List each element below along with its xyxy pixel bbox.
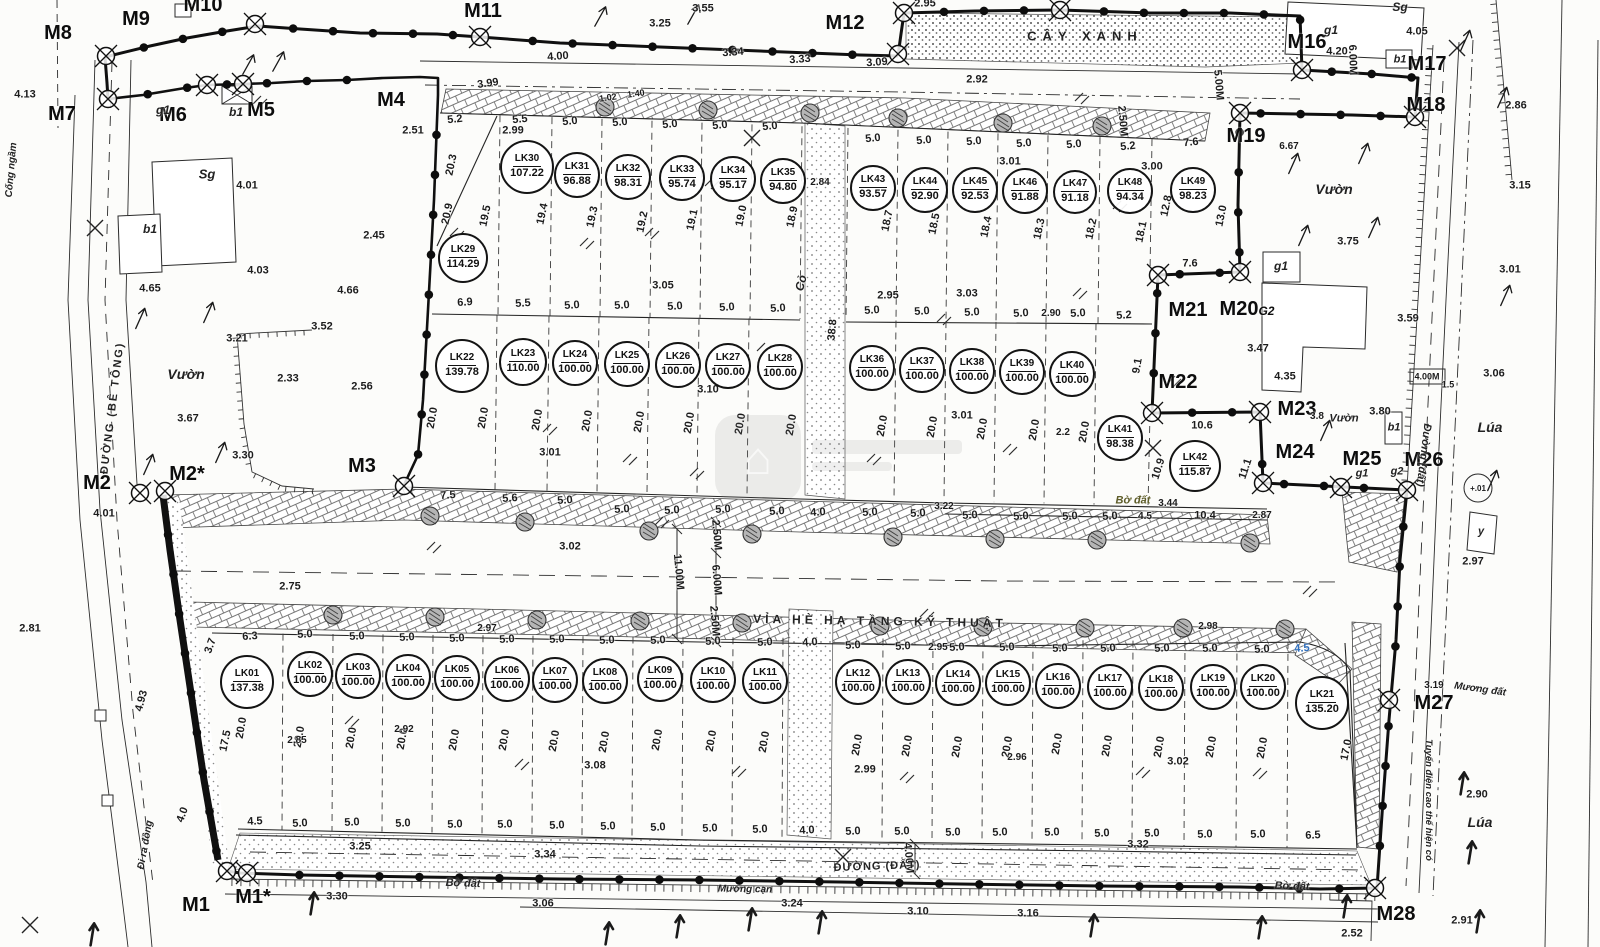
dim-label: 5.0 (1154, 643, 1170, 655)
lot-id: LK08 (591, 668, 619, 681)
dim-label: 5.0 (1100, 643, 1116, 655)
region-label: Vườn (1315, 182, 1352, 196)
dim-label: 20.0 (1153, 735, 1168, 758)
lot-area: 100.00 (941, 683, 975, 696)
dim-label: 2.90 (1041, 309, 1060, 319)
dim-label: 1.40 (627, 88, 646, 99)
lot-lk26: LK26100.00 (655, 342, 701, 388)
lot-lk16: LK16100.00 (1035, 663, 1081, 709)
lot-lk18: LK18100.00 (1138, 665, 1184, 711)
dim-label: 7.6 (1183, 137, 1199, 150)
region-label: VỈA HÈ HẠ TẦNG KỸ THUẬT (753, 613, 1007, 629)
lot-area: 98.38 (1106, 438, 1134, 451)
lot-lk36: LK36100.00 (849, 345, 895, 391)
region-label: Cống ngầm (5, 142, 20, 198)
dim-label: 3.80 (1369, 407, 1390, 418)
dim-label: 38.8 (827, 319, 840, 341)
region-label: Bờ đất (1274, 881, 1309, 893)
lot-area: 100.00 (955, 371, 989, 384)
lot-id: LK17 (1096, 674, 1124, 687)
lot-lk43: LK4393.57 (850, 165, 896, 211)
dim-label: 5.0 (910, 508, 926, 520)
dim-label: 2.92 (966, 75, 987, 86)
lot-id: LK42 (1181, 453, 1209, 466)
dim-label: 18.1 (1134, 220, 1149, 243)
dim-label: 5.0 (667, 301, 683, 313)
lot-area: 135.20 (1305, 703, 1339, 716)
lot-id: LK14 (944, 670, 972, 683)
dim-label: 20.0 (1028, 418, 1043, 441)
dim-label: 5.0 (1013, 308, 1029, 320)
dim-label: 3.02 (559, 542, 580, 553)
lot-id: LK38 (958, 358, 986, 371)
lot-id: LK25 (613, 351, 641, 364)
lot-lk11: LK11100.00 (742, 658, 788, 704)
lot-id: LK34 (719, 166, 747, 179)
lot-id: LK13 (894, 669, 922, 682)
dim-label: 3.55 (692, 4, 713, 15)
dim-label: 19.4 (535, 202, 550, 225)
dim-label: 5.5 (512, 114, 528, 127)
lot-id: LK35 (769, 168, 797, 181)
dim-label: 6.00M (1346, 45, 1358, 76)
marker-m24: M24 (1276, 442, 1315, 462)
dim-label: 5.0 (557, 495, 573, 507)
dim-label: 3.25 (649, 19, 670, 30)
lot-area: 98.31 (614, 177, 642, 190)
lot-area: 100.00 (1246, 687, 1280, 700)
lot-lk47: LK4791.18 (1053, 170, 1097, 214)
dim-label: 19.0 (734, 204, 749, 227)
lot-area: 100.00 (610, 364, 644, 377)
lot-id: LK28 (766, 354, 794, 367)
lot-id: LK29 (449, 245, 477, 258)
lot-lk01: LK01137.38 (220, 655, 274, 709)
lot-id: LK23 (509, 349, 537, 362)
lot-id: LK30 (513, 154, 541, 167)
dim-label: 5.2 (1116, 310, 1132, 322)
dim-label: +.01 (1470, 485, 1486, 493)
lot-lk35: LK3594.80 (760, 158, 806, 204)
lot-lk44: LK4492.90 (902, 167, 948, 213)
dim-label: 4.93 (134, 689, 150, 713)
lot-id: LK47 (1061, 179, 1089, 192)
dim-label: 5.0 (399, 632, 415, 644)
dim-label: 3.10 (907, 907, 928, 918)
lot-area: 100.00 (661, 365, 695, 378)
lot-id: LK45 (961, 177, 989, 190)
dim-label: 3.21 (226, 334, 247, 345)
region-label: Lúa (1468, 815, 1493, 829)
marker-m16: M16 (1288, 32, 1327, 52)
dim-label: 5.0 (845, 826, 861, 838)
dim-label: 2.98 (1198, 622, 1217, 632)
dim-label: 5.0 (1066, 139, 1082, 152)
lot-id: LK46 (1011, 178, 1039, 191)
lot-id: LK01 (233, 669, 261, 682)
lot-lk41: LK4198.38 (1097, 415, 1143, 461)
dim-label: 5.0 (1044, 827, 1060, 839)
lot-lk31: LK3196.88 (554, 152, 600, 198)
dim-label: 3.09 (866, 57, 888, 69)
lot-lk02: LK02100.00 (287, 651, 333, 697)
lot-area: 100.00 (1041, 686, 1075, 699)
dim-label: 5.0 (497, 819, 513, 831)
dim-label: 2.86 (1505, 101, 1526, 112)
dim-label: 20.0 (851, 733, 866, 756)
dim-label: 18.7 (880, 209, 895, 232)
lot-area: 139.78 (445, 366, 479, 379)
dim-label: 4.0 (802, 637, 818, 649)
dim-label: 5.0 (1013, 511, 1029, 523)
lot-id: LK15 (994, 670, 1022, 683)
dim-label: 3.00 (1141, 162, 1162, 173)
dim-label: 20.0 (235, 716, 250, 739)
dim-label: 5.0 (705, 636, 721, 648)
lot-area: 100.00 (538, 680, 572, 693)
region-label: g2 (1391, 467, 1404, 478)
lot-area: 100.00 (643, 679, 677, 692)
lot-lk15: LK15100.00 (985, 660, 1031, 706)
dim-label: 3.99 (477, 77, 500, 91)
dim-label: 20.0 (345, 726, 360, 749)
cadastral-map: LK01137.38LK02100.00LK03100.00LK04100.00… (0, 0, 1600, 947)
lot-area: 95.74 (668, 178, 696, 191)
lot-lk38: LK38100.00 (949, 348, 995, 394)
region-label: g1 (1324, 24, 1338, 36)
dim-label: 3.01 (951, 411, 972, 422)
dim-label: 9.1 (1131, 358, 1144, 375)
marker-m25: M25 (1343, 449, 1382, 469)
dim-label: 19.2 (635, 210, 650, 233)
lot-area: 100.00 (293, 674, 327, 687)
dim-label: 6.5 (1305, 830, 1321, 842)
marker-m4: M4 (377, 90, 405, 110)
lot-id: LK26 (664, 352, 692, 365)
dim-label: 3.8 (1310, 412, 1324, 422)
dim-label: 2.2 (1056, 428, 1070, 438)
lot-id: LK39 (1008, 359, 1036, 372)
marker-m22: M22 (1159, 372, 1198, 392)
dim-label: 5.0 (865, 133, 881, 146)
lot-area: 96.88 (563, 175, 591, 188)
region-label: Bờ đất (445, 878, 480, 890)
dim-label: 5.0 (992, 827, 1008, 839)
lot-id: LK03 (344, 663, 372, 676)
dim-label: 3.24 (781, 899, 802, 910)
region-label: ĐƯỜNG (BÊ TÔNG) (99, 341, 126, 475)
dim-label: 5.0 (762, 121, 778, 134)
lot-lk28: LK28100.00 (757, 344, 803, 390)
lot-id: LK09 (646, 666, 674, 679)
lot-lk10: LK10100.00 (690, 657, 736, 703)
marker-m2: M2 (83, 473, 111, 493)
marker-m21: M21 (1169, 300, 1208, 320)
dim-label: 20.0 (951, 735, 966, 758)
dim-label: 3.03 (956, 289, 977, 300)
dim-label: 5.0 (864, 305, 880, 317)
lot-id: LK43 (859, 175, 887, 188)
dim-label: 10.4 (1194, 511, 1215, 522)
dim-label: 3.08 (584, 761, 605, 772)
dim-label: 5.0 (770, 303, 786, 315)
dim-label: 4.5 (247, 816, 263, 828)
lot-area: 114.29 (446, 258, 479, 271)
lot-id: LK49 (1179, 177, 1207, 190)
dim-label: 2.99 (502, 126, 523, 137)
lot-lk27: LK27100.00 (705, 343, 751, 389)
lot-id: LK27 (714, 353, 742, 366)
dim-label: 13.0 (1214, 204, 1229, 227)
dim-label: 5.0 (962, 510, 978, 522)
dim-label: 2.85 (287, 736, 306, 746)
region-label: b1 (1388, 423, 1401, 434)
dim-label: 5.0 (1202, 643, 1218, 655)
region-label: Đi ra đồng (137, 820, 155, 870)
dim-label: 20.0 (477, 406, 492, 429)
dim-label: 10.9 (1150, 457, 1167, 481)
watermark-bar (812, 462, 892, 471)
dim-label: 5.0 (349, 631, 365, 643)
marker-m5: M5 (247, 100, 275, 120)
dim-label: 20.0 (1205, 735, 1220, 758)
lot-area: 100.00 (440, 678, 474, 691)
dim-label: 2.91 (1451, 916, 1472, 927)
dim-label: 4.05 (1406, 27, 1427, 38)
region-label: Đường (đất) (1414, 423, 1433, 487)
region-label: Mương đất (1453, 681, 1506, 698)
dim-label: 5.0 (862, 507, 878, 519)
lot-lk29: LK29114.29 (438, 233, 488, 283)
lot-area: 110.00 (506, 362, 539, 375)
dim-label: 5.0 (1052, 643, 1068, 655)
dim-label: 4.0 (810, 507, 826, 519)
region-label: Sg (199, 168, 216, 181)
dim-label: 20.0 (633, 410, 648, 433)
marker-m7: M7 (48, 104, 76, 124)
dim-label: 1.5 (1442, 381, 1455, 390)
lot-area: 100.00 (855, 368, 889, 381)
lot-id: LK44 (911, 177, 939, 190)
marker-m19: M19 (1227, 126, 1266, 146)
dim-label: 3.75 (1337, 237, 1358, 248)
dim-label: 3.01 (1499, 265, 1520, 276)
marker-m1: M1 (182, 895, 210, 915)
dim-label: 3.33 (789, 54, 811, 66)
lot-area: 100.00 (711, 366, 745, 379)
dim-label: 19.5 (478, 204, 493, 227)
dim-label: 5.0 (447, 819, 463, 831)
dim-label: 3.01 (999, 157, 1020, 168)
dim-label: 2.45 (363, 231, 384, 242)
lot-lk25: LK25100.00 (604, 341, 650, 387)
dim-label: 2.87 (1252, 511, 1271, 521)
marker-m1-star: M1* (235, 887, 271, 907)
lot-lk17: LK17100.00 (1087, 664, 1133, 710)
lot-area: 91.88 (1011, 191, 1039, 204)
dim-label: 5.0 (614, 504, 630, 516)
dim-label: 5.0 (1062, 511, 1078, 523)
dim-label: 5.0 (499, 634, 515, 646)
marker-m3: M3 (348, 456, 376, 476)
dim-label: 10.6 (1191, 421, 1212, 432)
lot-lk42: LK42115.87 (1169, 440, 1221, 492)
dim-label: 20.0 (498, 728, 513, 751)
lot-id: LK40 (1058, 361, 1086, 374)
dim-label: 2.95 (928, 643, 947, 653)
dim-label: 4.20 (1326, 47, 1347, 58)
lot-lk06: LK06100.00 (484, 656, 530, 702)
lot-area: 115.87 (1178, 466, 1211, 479)
lot-area: 92.90 (911, 190, 939, 203)
dim-label: 20.3 (444, 153, 459, 176)
dim-label: 4.65 (139, 284, 160, 295)
dim-label: 5.5 (515, 298, 531, 310)
dim-label: 5.2 (1120, 141, 1136, 154)
dim-label: 3.44 (1158, 499, 1177, 509)
lot-lk30: LK30107.22 (500, 140, 554, 194)
dim-label: 3.19 (1424, 681, 1443, 691)
region-label: y (1478, 527, 1484, 538)
dim-label: 2.84 (810, 178, 829, 188)
dim-label: 5.0 (966, 136, 982, 149)
dim-label: 20.0 (548, 729, 563, 752)
dim-label: 18.3 (1032, 217, 1047, 240)
dim-label: 5.0 (1250, 829, 1266, 841)
dim-label: 2.51 (402, 126, 423, 137)
region-label: Bờ đất (1116, 496, 1151, 507)
lot-id: LK22 (448, 353, 476, 366)
dim-label: 3.10 (697, 385, 718, 396)
dim-label: 5.2 (447, 114, 463, 127)
dim-label: 4.03 (247, 266, 268, 277)
lot-lk23: LK23110.00 (499, 338, 547, 386)
dim-label: 3.34 (722, 47, 744, 59)
marker-m11: M11 (464, 1, 502, 21)
lot-area: 94.34 (1116, 191, 1144, 204)
lot-lk19: LK19100.00 (1190, 664, 1236, 710)
dim-label: 4.0 (175, 806, 191, 824)
lot-id: LK32 (614, 164, 642, 177)
marker-m8: M8 (44, 23, 72, 43)
dim-label: 2.50M (1115, 105, 1129, 136)
dim-label: 18.2 (1084, 217, 1099, 240)
marker-m28: M28 (1377, 904, 1416, 924)
lot-id: LK33 (668, 165, 696, 178)
dim-label: 6.9 (457, 297, 473, 309)
dim-label: 4.5 (1294, 643, 1310, 655)
dim-label: 3.7 (203, 637, 219, 655)
dim-label: 2.92 (394, 725, 413, 735)
dim-label: 5.0 (612, 117, 628, 130)
dim-label: 5.0 (949, 642, 965, 654)
lot-id: LK18 (1147, 675, 1175, 688)
marker-m17: M17 (1408, 54, 1447, 74)
dim-label: 5.0 (964, 307, 980, 319)
lot-lk08: LK08100.00 (582, 658, 628, 704)
lot-id: LK02 (296, 661, 324, 674)
lot-id: LK05 (443, 665, 471, 678)
dim-label: 20.0 (901, 734, 916, 757)
lot-lk03: LK03100.00 (335, 653, 381, 699)
dim-label: 3.34 (534, 850, 555, 861)
dim-label: 2.33 (277, 374, 298, 385)
dim-label: 5.0 (895, 641, 911, 653)
dim-label: 5.0 (614, 300, 630, 312)
region-label: Vườn (167, 367, 204, 381)
marker-m12: M12 (826, 13, 865, 33)
dim-label: 7.5 (440, 490, 456, 502)
marker-m9: M9 (122, 9, 150, 29)
dim-label: 6.3 (242, 631, 258, 643)
lot-area: 100.00 (1055, 374, 1089, 387)
dim-label: 2.97 (477, 624, 496, 634)
lot-area: 100.00 (341, 676, 375, 689)
lot-area: 91.18 (1061, 192, 1089, 205)
lot-area: 95.17 (719, 179, 747, 192)
marker-m10: M10 (184, 0, 223, 15)
dim-label: 3.59 (1397, 314, 1418, 325)
dim-label: 4.5 (1138, 512, 1152, 522)
dim-label: 5.0 (650, 822, 666, 834)
dim-label: 5.0 (845, 640, 861, 652)
lot-id: LK21 (1308, 690, 1336, 703)
dim-label: 20.0 (651, 728, 666, 751)
dim-label: 5.0 (395, 818, 411, 830)
dim-label: 4.35 (1274, 372, 1295, 383)
lot-id: LK48 (1116, 178, 1144, 191)
lot-area: 100.00 (490, 679, 524, 692)
lot-id: LK37 (908, 357, 936, 370)
dim-label: 5.0 (752, 824, 768, 836)
dim-label: 5.0 (712, 120, 728, 133)
dim-label: 20.0 (876, 414, 891, 437)
dim-label: 5.0 (1016, 138, 1032, 151)
lot-id: LK36 (858, 355, 886, 368)
region-label: Vườn (1329, 414, 1358, 425)
lot-lk22: LK22139.78 (435, 339, 489, 393)
region-label: CÂY XANH (1027, 30, 1143, 43)
dim-label: 4.0 (799, 825, 815, 837)
watermark: ⌂ (715, 415, 801, 501)
dim-label: 5.0 (344, 817, 360, 829)
dim-label: 5.0 (599, 635, 615, 647)
region-label: g1 (1356, 469, 1369, 480)
marker-m27: M27 (1415, 693, 1454, 713)
dim-label: 3.05 (652, 281, 673, 292)
dim-label: 20.0 (426, 406, 441, 429)
dim-label: 20.0 (926, 415, 941, 438)
region-label: g1 (1274, 260, 1288, 272)
dim-label: 5.0 (914, 306, 930, 318)
lot-lk49: LK4998.23 (1170, 167, 1216, 213)
dim-label: 20.9 (440, 202, 455, 225)
dim-label: 11.00M (671, 554, 685, 591)
lot-lk45: LK4592.53 (952, 167, 998, 213)
lot-id: LK07 (541, 667, 569, 680)
dim-label: 17.5 (218, 729, 233, 752)
dim-label: 3.25 (349, 842, 370, 853)
dim-label: 5.0 (702, 823, 718, 835)
dim-label: 2.81 (19, 624, 40, 635)
dim-label: 5.0 (564, 300, 580, 312)
lot-area: 94.80 (769, 181, 797, 194)
dim-label: 5.0 (662, 119, 678, 132)
lot-area: 107.22 (510, 167, 544, 180)
lot-lk46: LK4691.88 (1002, 168, 1048, 214)
lot-area: 100.00 (588, 681, 622, 694)
dim-label: 20.0 (758, 730, 773, 753)
